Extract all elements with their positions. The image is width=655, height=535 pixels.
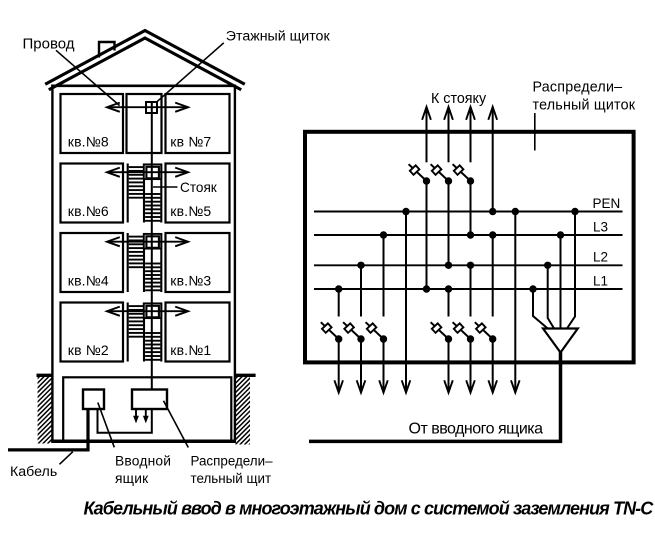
- svg-text:кв.№4: кв.№4: [68, 272, 109, 288]
- svg-text:L2: L2: [593, 250, 608, 265]
- svg-text:кв.№1: кв.№1: [170, 342, 211, 358]
- svg-text:Стояк: Стояк: [180, 180, 218, 195]
- svg-text:Распредели–: Распредели–: [191, 454, 274, 469]
- svg-text:От вводного ящика: От вводного ящика: [409, 421, 544, 438]
- svg-text:L3: L3: [593, 219, 608, 234]
- svg-text:Кабель: Кабель: [10, 464, 57, 480]
- svg-text:PEN: PEN: [593, 196, 621, 211]
- svg-text:кв №2: кв №2: [68, 342, 109, 358]
- svg-text:ящик: ящик: [115, 471, 149, 486]
- svg-text:Этажный щиток: Этажный щиток: [226, 29, 331, 45]
- svg-text:Кабельный ввод в многоэтажный: Кабельный ввод в многоэтажный дом с сист…: [84, 498, 655, 518]
- svg-text:Распредели–: Распредели–: [533, 79, 623, 95]
- svg-text:К стояку: К стояку: [431, 91, 487, 107]
- svg-text:кв.№8: кв.№8: [68, 133, 109, 149]
- svg-text:Провод: Провод: [23, 35, 75, 52]
- svg-text:кв №7: кв №7: [170, 133, 211, 149]
- svg-text:тельный щиток: тельный щиток: [533, 98, 636, 114]
- svg-text:тельный щит: тельный щит: [191, 471, 272, 486]
- svg-text:L1: L1: [593, 273, 608, 288]
- svg-text:кв.№6: кв.№6: [68, 203, 109, 219]
- svg-text:кв.№3: кв.№3: [170, 272, 211, 288]
- svg-text:кв.№5: кв.№5: [170, 203, 211, 219]
- svg-text:Вводной: Вводной: [115, 454, 171, 469]
